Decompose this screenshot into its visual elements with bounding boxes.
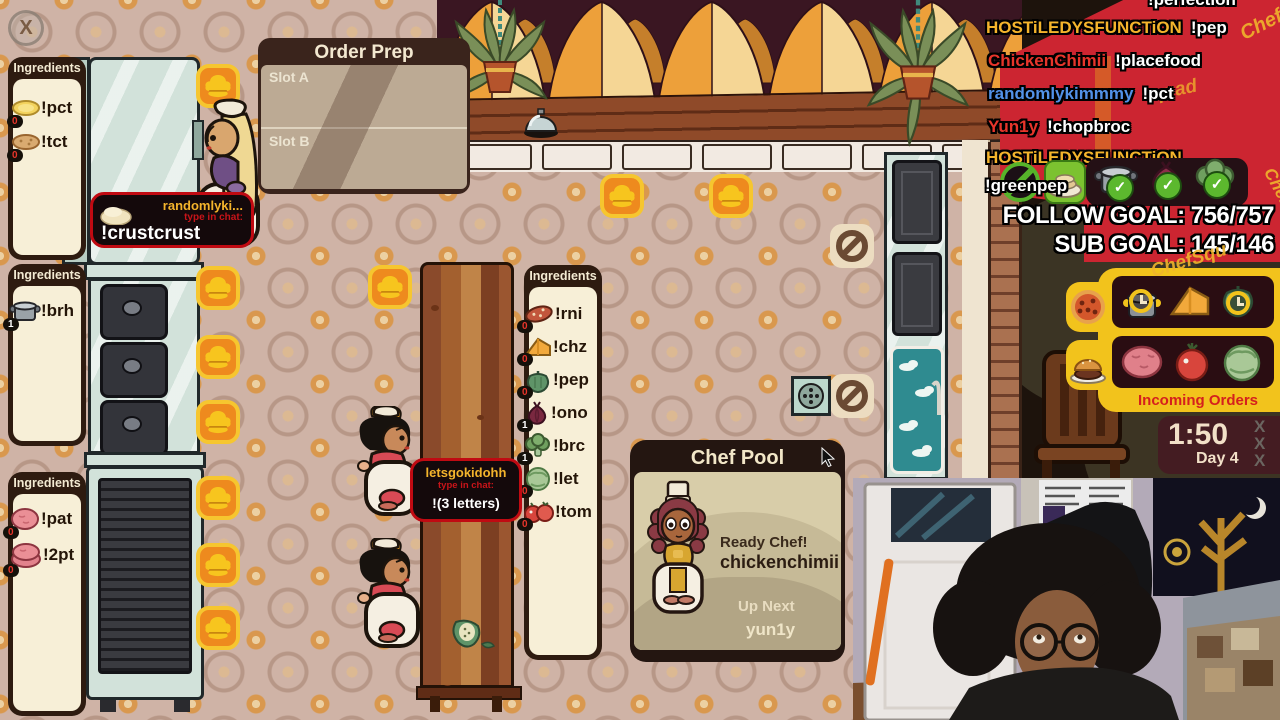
- tray: [892, 160, 942, 244]
- patty-icon: [1120, 342, 1164, 382]
- count-badge: 0: [7, 115, 23, 128]
- station-label-1: randomlyki... type in chat: !crustcrust: [90, 192, 254, 248]
- station-marker: [196, 543, 240, 587]
- no-symbol-icon: [836, 380, 868, 412]
- chat-message: !pep: [1191, 18, 1227, 38]
- no-placement-tile: [830, 224, 874, 268]
- chat-username: Yun1y: [988, 117, 1038, 137]
- strike-x: X: [1254, 435, 1265, 452]
- ingredient-panel-pot: Ingredients !brh 1: [8, 264, 86, 446]
- pizza-icon: [1070, 290, 1106, 324]
- chat-message: !pct: [1143, 84, 1174, 104]
- check-icon: ✓: [1154, 172, 1182, 200]
- cheese-icon: [1168, 282, 1212, 322]
- no-symbol-icon: [836, 230, 868, 262]
- order-tab: [1066, 282, 1110, 332]
- chat-line: randomlykimmmy !pct: [988, 84, 1174, 104]
- drawer: [622, 144, 692, 170]
- drain-icon: [798, 383, 824, 409]
- mouse-cursor: [820, 447, 838, 467]
- count-badge: 0: [517, 353, 533, 366]
- floor-drain: [791, 376, 831, 416]
- label-command: !(3 letters): [419, 491, 513, 515]
- count-badge: 1: [3, 318, 19, 331]
- chat-message: !chopbroc: [1047, 117, 1130, 137]
- panel-title: Ingredients: [8, 472, 86, 494]
- broccoli-done-icon: ✓: [1194, 158, 1240, 204]
- follow-goal: FOLLOW GOAL: 756/757: [1003, 202, 1274, 230]
- ingredient-cmd: !brc: [553, 436, 585, 456]
- up-next-name: yun1y: [746, 620, 795, 640]
- close-icon: X: [19, 17, 32, 39]
- cabinet-leg: [430, 696, 440, 712]
- ready-chef-label: Ready Chef!: [720, 534, 808, 551]
- onion-done-icon: ✓: [1146, 160, 1190, 204]
- lettuce-icon: [1220, 341, 1264, 383]
- stream-screen: Order Prep Slot A Slot B Ingredients !pc…: [0, 0, 1280, 720]
- count-badge: 0: [3, 564, 19, 577]
- label-username: letsgokidohh: [419, 466, 513, 480]
- ingredient-cmd: !brh: [41, 301, 74, 321]
- drawer: [542, 144, 612, 170]
- station-marker: [368, 265, 412, 309]
- chat-line: HOSTiLEDYSFUNCTiON !pep: [986, 18, 1227, 38]
- strike-x: X: [1254, 418, 1265, 435]
- burner-knob: [122, 300, 142, 316]
- check-icon: ✓: [1203, 171, 1231, 199]
- ingredient-panel-produce: Ingredients !rni 0 !chz 0 !pep 0 !ono 1: [524, 265, 602, 660]
- panel-title: Ingredients: [8, 264, 86, 286]
- chat-username: randomlykimmmy: [988, 84, 1134, 104]
- ingredient-cmd: !pep: [553, 370, 589, 390]
- pot-done-icon: ✓: [1094, 160, 1142, 204]
- count-badge: 0: [3, 526, 19, 539]
- chef-pool-avatar: [646, 480, 710, 640]
- ready-chef-name: chickenchimii: [720, 552, 839, 573]
- chat-message: !greenpep: [985, 176, 1067, 196]
- station-label-2: letsgokidohh type in chat: !(3 letters): [410, 458, 522, 522]
- oven-grill: [98, 478, 192, 674]
- timer-box: 1:50 Day 4 X X X: [1158, 416, 1280, 474]
- chat-line: Yun1y !chopbroc: [988, 117, 1130, 137]
- panel-title: Ingredients: [8, 57, 86, 79]
- ingredient-cmd: !2pt: [43, 545, 74, 565]
- chat-username: ChickenChimii: [988, 51, 1106, 71]
- count-badge: 0: [517, 518, 533, 531]
- tray: [892, 252, 942, 336]
- dough-icon: [99, 203, 133, 225]
- drawer: [702, 144, 772, 170]
- check-icon: ✓: [1106, 174, 1134, 202]
- order-prep-panel: Order Prep Slot A Slot B: [258, 38, 470, 194]
- ingredient-cmd: !rni: [555, 304, 582, 324]
- chat-line: ChickenChimii !placefood: [988, 51, 1201, 71]
- station-marker: [196, 476, 240, 520]
- station-marker: [196, 400, 240, 444]
- close-button[interactable]: X: [8, 10, 44, 46]
- burner-knob: [122, 358, 142, 374]
- label-hint: type in chat:: [419, 480, 513, 491]
- timer-time: 1:50: [1168, 418, 1228, 452]
- tomato-icon: [1171, 341, 1213, 383]
- chat-username: HOSTiLEDYSFUNCTiON: [986, 18, 1182, 38]
- label-command: !crustcrust: [101, 223, 243, 245]
- ingredient-cmd: !pat: [41, 509, 72, 529]
- panel-title: Ingredients: [524, 265, 602, 287]
- sink: [890, 346, 944, 474]
- pepper-timer-icon: [1218, 282, 1258, 322]
- station-marker: [196, 335, 240, 379]
- incoming-orders-title: Incoming Orders: [1138, 392, 1258, 409]
- ingredient-cmd: !let: [553, 469, 579, 489]
- count-badge: 0: [517, 320, 533, 333]
- station-marker: [196, 266, 240, 310]
- ingredient-cmd: !chz: [553, 337, 587, 357]
- count-badge: 1: [517, 419, 533, 432]
- up-next-label: Up Next: [738, 598, 795, 615]
- chat-message: !perfection: [1148, 0, 1236, 10]
- order-row: [1112, 336, 1274, 388]
- ingredient-panel-crusts: Ingredients !pct 0 !tct 0: [8, 57, 86, 260]
- strike-x: X: [1254, 452, 1265, 469]
- sub-goal: SUB GOAL: 145/146: [1054, 231, 1274, 259]
- drawer: [462, 144, 532, 170]
- burner-knob: [122, 416, 142, 432]
- chopped-pepper: [448, 610, 498, 656]
- order-prep-title: Order Prep: [261, 41, 467, 65]
- cabinet-leg: [492, 696, 502, 712]
- order-row: [1112, 276, 1274, 328]
- station-marker: [709, 174, 753, 218]
- count-badge: 0: [517, 386, 533, 399]
- order-tab: [1066, 340, 1110, 390]
- station-marker: [196, 606, 240, 650]
- chat-message: !placefood: [1115, 51, 1201, 71]
- oven-foot: [100, 700, 116, 712]
- chef-red: [352, 538, 424, 650]
- hanging-plant: [866, 0, 970, 150]
- ingredient-cmd: !tom: [555, 502, 592, 522]
- sink-clouds: [893, 349, 941, 471]
- pot-timer-icon: [1122, 282, 1162, 322]
- count-badge: 0: [7, 149, 23, 162]
- no-placement-tile: [830, 374, 874, 418]
- chef-pool-panel: Chef Pool: [630, 440, 845, 662]
- oven-foot: [174, 700, 190, 712]
- drawer: [782, 144, 852, 170]
- ingredient-cmd: !tct: [41, 132, 67, 152]
- ingredient-cmd: !pct: [41, 98, 72, 118]
- station-marker: [600, 174, 644, 218]
- webcam-feed: [853, 478, 1280, 720]
- ingredient-cmd: !ono: [551, 403, 588, 423]
- burger-icon: [1069, 346, 1107, 384]
- ingredient-panel-patties: Ingredients !pat 0 !2pt 0: [8, 472, 86, 716]
- chef-pool-title: Chef Pool: [634, 444, 841, 472]
- timer-day: Day 4: [1196, 450, 1239, 468]
